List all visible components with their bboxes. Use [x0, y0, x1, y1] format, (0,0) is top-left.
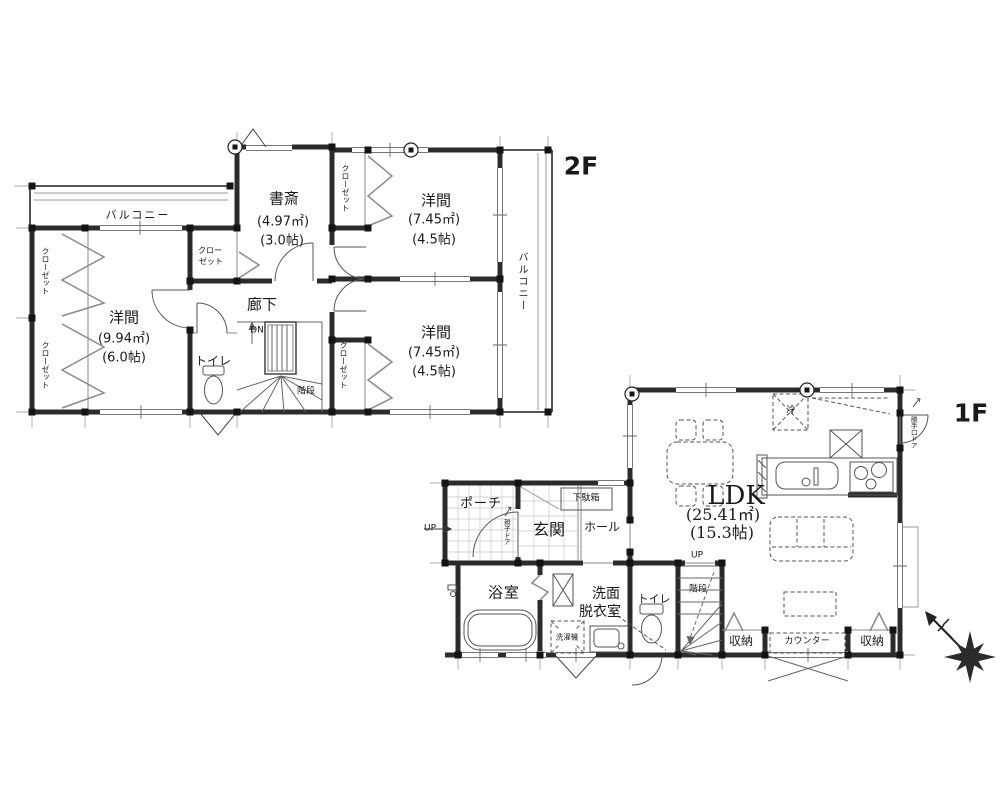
balcony-top-label: バルコニー — [106, 210, 171, 221]
entrance-label: 玄関 — [533, 522, 565, 538]
room-sw-name: 洋間 — [109, 311, 139, 326]
counter-label: カウンター — [784, 638, 829, 647]
compass-north-arrow — [925, 611, 996, 683]
back-door-label: 勝手口ドア — [910, 416, 917, 449]
shoe-cabinet-label: 下駄箱 — [572, 495, 599, 504]
washing-machine-label: 洗濯機 — [556, 633, 579, 641]
vent-markers — [200, 129, 848, 681]
washroom-label-2: 脱衣室 — [579, 605, 621, 619]
stairs-up-label: UP — [691, 552, 703, 561]
ldk-size: (15.3帖) — [690, 525, 754, 541]
room-sw-size: (6.0帖) — [102, 352, 146, 365]
study-name: 書斎 — [269, 192, 299, 207]
room-sw-area: (9.94㎡) — [98, 333, 150, 346]
washroom-label-1: 洗面 — [592, 587, 620, 601]
fridge-label: 冷 — [786, 407, 795, 416]
floor-title-2f: 2F — [564, 154, 598, 179]
closet-left-upper-label: クローゼット — [41, 247, 49, 295]
hall-label: ホール — [584, 521, 620, 533]
floor-title-1f: 1F — [954, 401, 988, 426]
closet-study-label-1: クロー — [198, 247, 222, 255]
porch-label: ポーチ — [460, 498, 502, 511]
closet-right-upper-label: クローゼット — [341, 164, 349, 212]
balcony-right-label: バルコニー — [516, 252, 526, 312]
floorplan-linework — [0, 0, 1000, 800]
stairs-dn-label: DN — [250, 327, 264, 336]
floorplan-canvas: 2F バルコニー クローゼット クローゼット 洋間 (9.94㎡) (6.0帖)… — [0, 0, 1000, 800]
toilet-2f-label: トイレ — [195, 355, 231, 367]
study-size: (3.0帖) — [260, 235, 304, 248]
stairs-1f-label: 階段 — [689, 586, 707, 595]
toilet-1f-label: トイレ — [638, 594, 671, 605]
bathroom-label: 浴室 — [488, 586, 520, 601]
room-ne-size: (4.5帖) — [412, 234, 456, 247]
room-se-size: (4.5帖) — [412, 366, 456, 379]
room-se-area: (7.45㎡) — [408, 347, 460, 360]
room-ne-area: (7.45㎡) — [408, 214, 460, 227]
closet-study-label-2: ゼット — [199, 258, 223, 266]
stairs-2f — [237, 322, 322, 412]
storage-right-label: 収納 — [860, 635, 884, 647]
window-ticks — [140, 143, 907, 662]
closet-left-lower-label: クローゼット — [41, 341, 49, 389]
porch-up-label: UP — [424, 525, 436, 534]
storage-left-label: 収納 — [729, 635, 753, 647]
fixtures — [203, 366, 918, 652]
closet-right-lower-label: クローゼット — [339, 341, 347, 389]
corridor-label: 廊下 — [247, 298, 277, 313]
study-area: (4.97㎡) — [257, 216, 309, 229]
ldk-area: (25.41㎡) — [686, 507, 760, 523]
stairs-2f-label: 階段 — [297, 388, 315, 397]
room-ne-name: 洋間 — [421, 194, 451, 209]
entrance-door-label: 親子ドア — [503, 519, 510, 545]
room-se-name: 洋間 — [421, 326, 451, 341]
stairs-1f — [678, 566, 722, 655]
